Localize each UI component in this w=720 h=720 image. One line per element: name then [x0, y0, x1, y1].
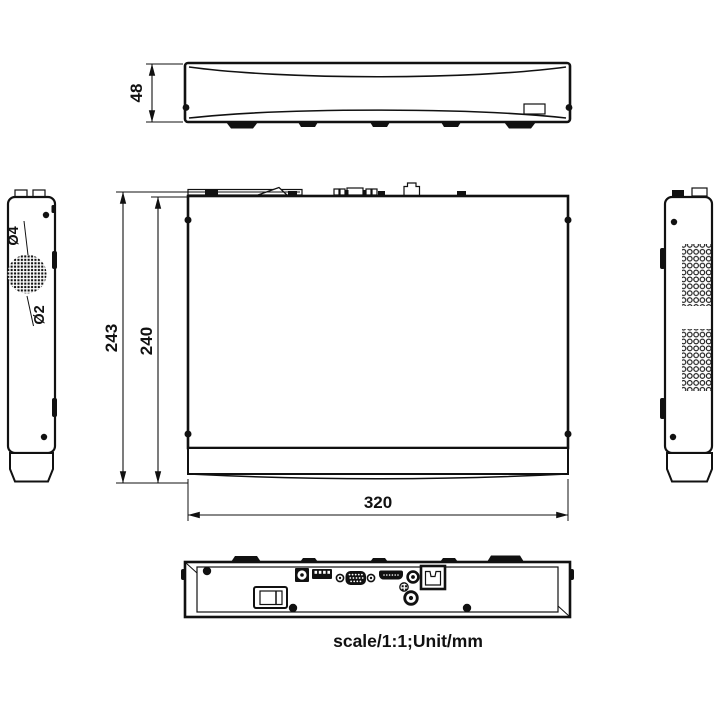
left-side-screw-top: [43, 212, 49, 218]
left-side-view: Ø4 Ø2: [6, 190, 57, 482]
vent-grid-upper: [682, 244, 713, 306]
left-side-tab-lower: [52, 398, 57, 417]
rear-view: [181, 556, 574, 618]
rj45-top-profile: [404, 183, 420, 195]
front-left-bump: [183, 104, 190, 111]
scale-caption: scale/1:1;Unit/mm: [333, 631, 483, 651]
right-side-view: [660, 188, 713, 482]
dim-label-48: 48: [127, 84, 146, 103]
rear-screw-right: [463, 604, 471, 612]
ethernet-port: [421, 566, 445, 589]
dim-label-243: 243: [102, 324, 121, 352]
rear-recessed-panel: [197, 567, 558, 612]
dimension-depth-240: 240: [137, 197, 188, 483]
rear-screw-left: [203, 567, 211, 575]
dc-power-jack: [295, 568, 309, 582]
right-side-screw-bottom: [670, 434, 676, 440]
dimension-width-320: 320: [188, 479, 568, 521]
left-side-screw-bottom: [41, 434, 47, 440]
right-side-tab-lower: [660, 398, 665, 419]
drawing-svg: 48: [0, 0, 720, 720]
usb-port: [312, 569, 332, 579]
dim-label-240: 240: [137, 327, 156, 355]
vent-grid-lower: [682, 329, 713, 391]
top-rear-edge-profiles: [188, 183, 466, 195]
front-right-bump: [566, 104, 573, 111]
hdmi-port: [379, 571, 403, 580]
right-side-tab-upper: [660, 248, 665, 269]
vga-top-profile: [347, 188, 363, 195]
left-side-top-bump: [52, 205, 57, 213]
technical-drawing-page: 48: [0, 0, 720, 720]
right-side-screw-top: [671, 219, 677, 225]
power-switch: [254, 587, 287, 608]
left-side-foot: [10, 453, 53, 482]
speaker-vent-circle: [8, 255, 47, 294]
dimension-height-48: 48: [127, 64, 183, 122]
right-side-foot: [667, 453, 712, 482]
top-view: [185, 183, 572, 479]
dim-label-320: 320: [364, 493, 392, 512]
rear-screw-center: [289, 604, 297, 612]
left-side-tab-upper: [52, 251, 57, 269]
ir-window: [524, 104, 545, 114]
front-view: [183, 63, 573, 129]
vent-dia-outer-label: Ø4: [6, 226, 22, 245]
vent-dia-inner-label: Ø2: [32, 305, 48, 324]
